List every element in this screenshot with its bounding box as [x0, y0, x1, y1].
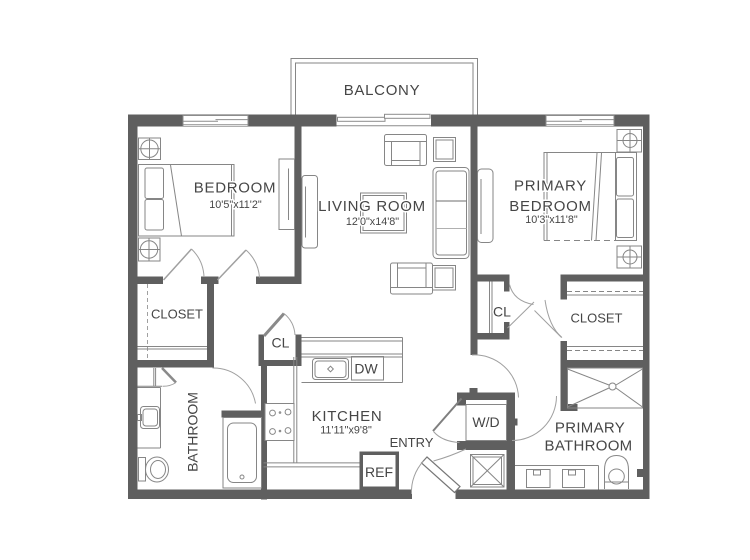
svg-text:BATHROOM: BATHROOM: [545, 438, 633, 455]
svg-text:CL: CL: [493, 304, 511, 320]
svg-text:PRIMARY: PRIMARY: [514, 178, 587, 195]
svg-text:CL: CL: [272, 335, 290, 351]
svg-text:KITCHEN: KITCHEN: [312, 408, 383, 425]
svg-text:CLOSET: CLOSET: [570, 311, 622, 326]
svg-text:ENTRY: ENTRY: [390, 435, 434, 450]
svg-text:CLOSET: CLOSET: [151, 307, 203, 322]
svg-text:REF: REF: [365, 464, 393, 480]
svg-text:BATHROOM: BATHROOM: [185, 392, 201, 472]
svg-text:W/D: W/D: [472, 414, 499, 430]
svg-text:LIVING ROOM: LIVING ROOM: [318, 198, 426, 215]
svg-text:BALCONY: BALCONY: [344, 82, 421, 99]
svg-text:DW: DW: [354, 361, 378, 377]
svg-text:10'3"x11'8": 10'3"x11'8": [525, 214, 578, 226]
svg-text:11'11"x9'8": 11'11"x9'8": [320, 425, 372, 437]
svg-text:BEDROOM: BEDROOM: [194, 180, 276, 197]
svg-text:12'0"x14'8": 12'0"x14'8": [346, 216, 399, 228]
svg-text:10'5"x11'2": 10'5"x11'2": [209, 199, 262, 211]
svg-text:PRIMARY: PRIMARY: [555, 420, 625, 437]
svg-text:BEDROOM: BEDROOM: [509, 198, 591, 215]
